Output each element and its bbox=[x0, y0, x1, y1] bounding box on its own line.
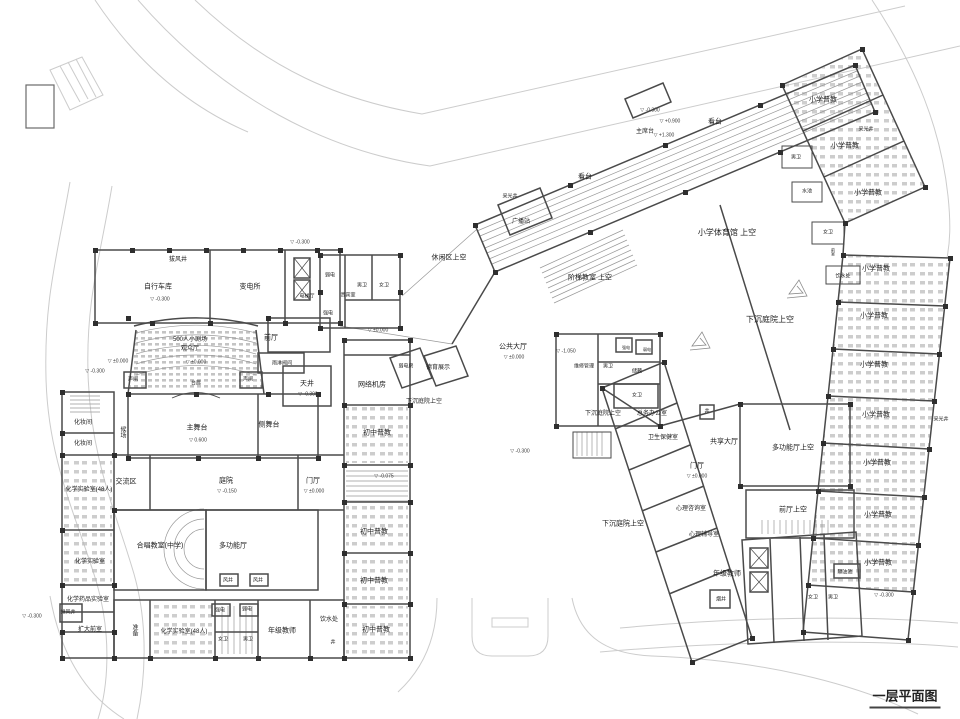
room-label: 小学普教 bbox=[809, 97, 837, 104]
room-label: 台唇 bbox=[191, 382, 201, 387]
room-label: 变电所 bbox=[240, 284, 261, 291]
room-label: 男卫 bbox=[791, 156, 801, 161]
room-label: 女卫 bbox=[379, 284, 389, 289]
room-label: 声闸 bbox=[128, 378, 138, 383]
room-label: 小学普教 bbox=[862, 412, 890, 419]
room-label: 声闸 bbox=[243, 378, 253, 383]
room-label: 排风井 bbox=[60, 611, 75, 616]
level-mark: ▽ 0.600 bbox=[189, 439, 207, 444]
room-label: 自行车库 bbox=[144, 284, 172, 291]
labels-layer: 拔风井自行车库▽ -0.300变电所电梯厅弱电强电贵宾室男卫女卫▽ ±0.000… bbox=[0, 0, 960, 719]
room-label: 年级教师 bbox=[713, 571, 741, 578]
level-mark: ▽ -0.300 bbox=[150, 298, 169, 303]
room-label: 化妆间 bbox=[74, 441, 92, 447]
room-label: 侧舞台 bbox=[259, 422, 280, 429]
room-label: 强电 bbox=[323, 312, 333, 317]
level-mark: ▽ -0.150 bbox=[217, 490, 236, 495]
room-label: 多功能厅 bbox=[219, 543, 247, 550]
room-label: 饮水处 bbox=[835, 275, 850, 280]
room-label: 隔油池 bbox=[837, 571, 852, 576]
room-label: 采光井 bbox=[933, 418, 948, 423]
room-label: 初中普教 bbox=[363, 430, 391, 437]
room-label: 贵宾室 bbox=[340, 294, 355, 299]
room-label: 前室 bbox=[831, 248, 835, 256]
level-mark: ▽ -1.050 bbox=[556, 350, 575, 355]
level-mark: ▽ -0.300 bbox=[874, 594, 893, 599]
room-label: 扩大前室 bbox=[78, 627, 102, 633]
level-mark: ▽ ±0.000 bbox=[186, 361, 207, 366]
room-label: 前厅上空 bbox=[779, 507, 807, 514]
level-mark: ▽ +0.900 bbox=[660, 120, 681, 125]
room-label: 德育展示 bbox=[426, 365, 450, 371]
room-label: 井 bbox=[330, 641, 335, 646]
level-mark: ▽ -0.300 bbox=[22, 615, 41, 620]
room-label: 风井 bbox=[253, 579, 263, 584]
level-mark: ▽ ±0.000 bbox=[108, 360, 129, 365]
room-label: 男卫 bbox=[357, 284, 367, 289]
room-label: 强电 bbox=[215, 609, 225, 614]
room-label: 雨淋阀间 bbox=[272, 362, 292, 367]
room-label: 看台 bbox=[578, 174, 592, 181]
room-label: 总务办公室 bbox=[637, 411, 667, 417]
room-label: 井 bbox=[704, 410, 709, 415]
room-label: 广播站 bbox=[512, 219, 530, 225]
room-label: 拔风井 bbox=[169, 257, 187, 263]
level-mark: ▽ ±0.000 bbox=[304, 490, 325, 495]
room-label: 小学普教 bbox=[831, 143, 859, 150]
room-label: 女卫 bbox=[823, 231, 833, 236]
room-label: 交流区 bbox=[116, 479, 137, 486]
room-label: 小学体育馆 上空 bbox=[698, 229, 756, 237]
room-label: 化妆间 bbox=[74, 420, 92, 426]
room-label: 风井 bbox=[223, 579, 233, 584]
room-label: 化学药品实验室 bbox=[67, 597, 109, 603]
room-label: 男卫 bbox=[828, 596, 838, 601]
room-label: 庭院 bbox=[219, 478, 233, 485]
room-label: 主席台 bbox=[636, 129, 654, 135]
level-mark: ▽ +1.300 bbox=[654, 134, 675, 139]
room-label: 合唱教室(中学) bbox=[137, 543, 184, 550]
room-label: 下沉庭院上空 bbox=[406, 399, 442, 405]
room-label: 门厅 bbox=[690, 463, 704, 470]
room-label: 弱电 bbox=[643, 348, 651, 352]
level-mark: ▽ -0.300 bbox=[510, 450, 529, 455]
room-label: 强电 bbox=[622, 346, 630, 350]
room-label: 采光井 bbox=[502, 195, 517, 200]
room-label: 弱电房 bbox=[398, 365, 413, 370]
room-label: 公共大厅 bbox=[499, 344, 527, 351]
room-label: 化学实验室(48人) bbox=[66, 487, 113, 493]
room-label: 男卫 bbox=[603, 365, 613, 370]
room-label: 维修管理 bbox=[574, 365, 594, 370]
room-label: 心理辅导室 bbox=[689, 532, 719, 538]
room-label: 水池 bbox=[802, 190, 812, 195]
room-label: 卫生保健室 bbox=[648, 435, 678, 441]
room-label: 共享大厅 bbox=[710, 439, 738, 446]
room-label: 化学实验室 bbox=[75, 559, 105, 565]
level-mark: ▽ -0.300 bbox=[298, 393, 317, 398]
room-label: 阶梯教室 上空 bbox=[568, 275, 612, 282]
room-label: 观众厅 bbox=[181, 346, 199, 352]
room-label: 电梯厅 bbox=[299, 295, 314, 300]
room-label: 500人小剧场 bbox=[173, 337, 207, 343]
room-label: 初中普教 bbox=[362, 627, 390, 634]
room-label: 候场 bbox=[119, 426, 125, 438]
room-label: 心理咨询室 bbox=[676, 506, 706, 512]
room-label: 女卫 bbox=[632, 394, 642, 399]
room-label: 小学普教 bbox=[862, 266, 890, 273]
room-label: 弱电 bbox=[325, 274, 335, 279]
room-label: 下沉庭院上空 bbox=[602, 521, 644, 528]
room-label: 女卫 bbox=[218, 638, 228, 643]
room-label: 小学普教 bbox=[860, 313, 888, 320]
room-label: 看台 bbox=[708, 119, 722, 126]
sheet-title: 一层平面图 bbox=[869, 686, 940, 709]
room-label: 准备 bbox=[131, 624, 137, 636]
room-label: 多功能厅上空 bbox=[772, 445, 814, 452]
room-label: 门厅 bbox=[306, 478, 320, 485]
room-label: 烟井 bbox=[716, 598, 726, 603]
floor-plan-sheet: 拔风井自行车库▽ -0.300变电所电梯厅弱电强电贵宾室男卫女卫▽ ±0.000… bbox=[0, 0, 960, 719]
level-mark: ▽ -0.075 bbox=[374, 475, 393, 480]
level-mark: ▽ ±0.000 bbox=[687, 475, 708, 480]
room-label: 饮水处 bbox=[320, 617, 338, 623]
room-label: 年级教师 bbox=[268, 628, 296, 635]
room-label: 采光井 bbox=[858, 128, 873, 133]
room-label: 小学普教 bbox=[864, 560, 892, 567]
room-label: 小学普教 bbox=[860, 362, 888, 369]
room-label: 化学实验室(48人) bbox=[161, 629, 208, 635]
room-label: 小学普教 bbox=[863, 460, 891, 467]
room-label: 女卫 bbox=[808, 596, 818, 601]
level-mark: ▽ -0.300 bbox=[640, 109, 659, 114]
room-label: 主舞台 bbox=[187, 425, 208, 432]
room-label: 男卫 bbox=[243, 638, 253, 643]
level-mark: ▽ ±0.000 bbox=[368, 329, 389, 334]
room-label: 储藏 bbox=[632, 370, 642, 375]
room-label: 初中普教 bbox=[360, 529, 388, 536]
room-label: 小学普教 bbox=[864, 512, 892, 519]
level-mark: ▽ ±0.000 bbox=[504, 356, 525, 361]
room-label: 下沉庭院上空 bbox=[746, 316, 794, 324]
room-label: 网络机房 bbox=[358, 382, 386, 389]
room-label: 天井 bbox=[300, 381, 314, 388]
room-label: 下沉庭院上空 bbox=[585, 411, 621, 417]
room-label: 前厅 bbox=[264, 335, 278, 342]
room-label: 弱电 bbox=[242, 608, 252, 613]
level-mark: ▽ -0.300 bbox=[85, 370, 104, 375]
level-mark: ▽ -0.300 bbox=[290, 241, 309, 246]
room-label: 休闲区上空 bbox=[432, 255, 467, 262]
room-label: 小学普教 bbox=[854, 190, 882, 197]
room-label: 初中普教 bbox=[360, 578, 388, 585]
